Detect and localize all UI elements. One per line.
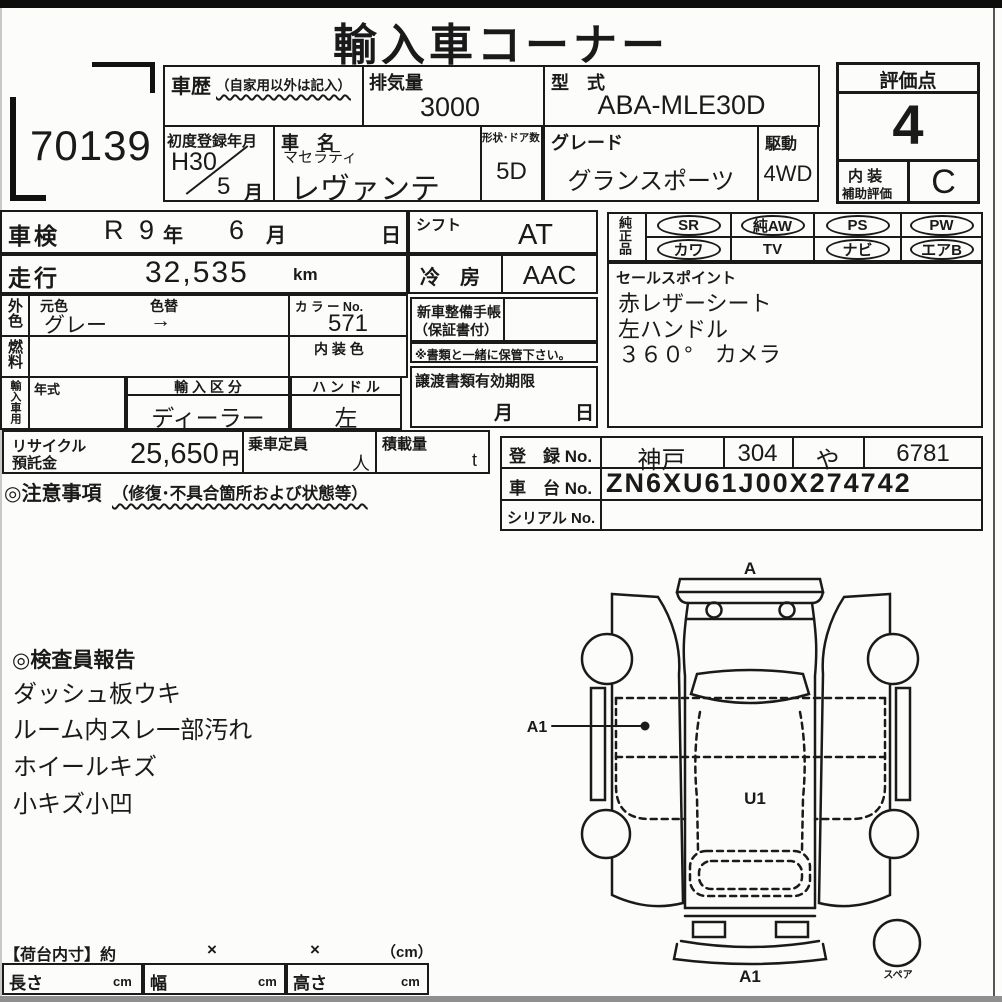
fuel-vlabel: 燃料 [7, 339, 22, 369]
rear-bumper-curve [681, 941, 819, 947]
shaken-month-unit: 月 [266, 219, 286, 248]
a1-arrow-dot [641, 722, 650, 731]
cargo-times-1: × [207, 940, 217, 960]
equip-leather: カワ [657, 239, 721, 260]
tail-light-right [776, 922, 808, 937]
cooling-value: AAC [501, 260, 598, 291]
shift-label: シフト [416, 214, 461, 235]
top-edge-strip [0, 0, 1002, 8]
caution-label: ◎注意事項 [4, 477, 101, 506]
load-label: 積載量 [382, 433, 427, 454]
equip-cell-sr: SR [645, 212, 732, 238]
roof-rail-left [695, 712, 700, 850]
headlamp-washer-right [780, 603, 795, 618]
recycle-divider-1 [242, 432, 244, 472]
cooling-label: 冷 房 [420, 261, 480, 290]
equip-pw: PW [910, 215, 974, 236]
keep-docs-note: ※書類と一緒に保管下さい。 [415, 346, 571, 363]
right-sill [896, 688, 910, 800]
grade-label: グレード [551, 129, 623, 155]
equip-ps: PS [826, 215, 890, 236]
equipment-vlabel: 純正品 [618, 216, 631, 255]
inspector-report-title: ◎検査員報告 [12, 644, 135, 674]
transfer-docs-label: 譲渡書類有効期限 [415, 370, 535, 391]
mileage-unit: km [293, 265, 318, 285]
inspector-item-3: ホイールキズ [13, 747, 157, 782]
cargo-width-label: 幅 [150, 969, 167, 994]
first-reg-month-unit: 月 [244, 178, 263, 205]
diagram-roof-label: U1 [744, 789, 766, 808]
history-note: （自家用以外は記入） [216, 74, 351, 94]
load-unit: t [472, 450, 477, 471]
model-code-value: ABA-MLE30D [543, 90, 820, 121]
reg-class-no: 304 [723, 440, 792, 468]
grade-value: グランスポーツ [543, 161, 759, 196]
rear-window-inner [699, 861, 802, 889]
right-rear-wheel [870, 810, 918, 858]
left-rear-wheel [582, 810, 630, 858]
vehicle-damage-diagram: A A1 U1 A1 スペア [500, 558, 1002, 1002]
maintenance-divider [503, 299, 505, 340]
right-front-wheel [868, 634, 918, 684]
equip-cell-navi: ナビ [813, 236, 902, 262]
score-label: 評価点 [836, 66, 980, 93]
diagram-rear-label: A1 [739, 967, 761, 986]
drive-value: 4WD [757, 161, 819, 187]
import-year-label: 年式 [34, 379, 60, 398]
handle-label: ハ ン ド ル [290, 377, 402, 397]
shape-doors-label: 形状･ドア数 [482, 130, 540, 145]
sales-point-3: ３６０° カメラ [618, 337, 781, 369]
equip-cell-aw: 純AW [730, 212, 815, 238]
import-division-value: ディーラー [126, 399, 290, 433]
diagram-front-label: A [744, 559, 756, 578]
spare-tire [874, 920, 920, 966]
transfer-day-unit: 日 [575, 398, 594, 425]
roof-rail-right [800, 712, 805, 850]
cargo-height-unit: cm [401, 974, 420, 989]
capacity-unit: 人 [352, 450, 370, 476]
equip-cell-kawa: カワ [645, 236, 732, 262]
shaken-day-unit: 日 [381, 219, 401, 248]
inspector-item-2: ルーム内スレ一部汚れ [13, 710, 252, 745]
shaken-month: 6 [229, 215, 244, 246]
shaken-year-unit: 年 [163, 219, 183, 248]
reg-row-divider-2 [502, 499, 981, 501]
drive-label: 駆動 [765, 130, 797, 154]
mileage-label: 走行 [8, 259, 60, 293]
color-no-value: 571 [288, 310, 408, 338]
maintenance-line2: （保証書付） [414, 320, 498, 340]
mileage-value: 32,535 [145, 256, 249, 290]
first-reg-month: 5 [217, 173, 230, 201]
chassis-no-value: ZN6XU61J00X274742 [606, 468, 912, 499]
recycle-unit: 円 [222, 444, 239, 469]
body-side-right [812, 603, 816, 908]
auction-sheet: 輸入車コーナー 70139 車歴 （自家用以外は記入） 排気量 3000 型 式… [0, 0, 1002, 1002]
interior-score-value: C [907, 163, 980, 202]
displacement-label: 排気量 [369, 69, 423, 95]
recycle-value: 25,650 [130, 438, 219, 471]
ext-color-vlabel: 外色 [7, 298, 22, 328]
reg-number: 6781 [863, 440, 983, 468]
roof-area-right [815, 698, 885, 819]
shape-doors-value: 5D [480, 158, 543, 186]
diagram-left-panel-label: A1 [527, 719, 548, 736]
equip-airbag: エアB [910, 239, 974, 260]
equip-cell-tv: TV [730, 236, 815, 262]
cargo-height-label: 高さ [293, 969, 327, 994]
serial-no-label: シリアル No. [507, 507, 595, 528]
caution-note: （修復･不具合箇所および状態等） [112, 480, 368, 504]
equip-cell-ps: PS [813, 212, 902, 238]
diagram-spare-label: スペア [883, 969, 912, 981]
equip-navi: ナビ [826, 239, 890, 260]
equip-sr: SR [657, 215, 721, 236]
left-sill [591, 688, 605, 800]
shaken-label: 車検 [8, 217, 60, 251]
cargo-unit-note: （cm） [381, 941, 433, 962]
equip-cell-pw: PW [900, 212, 983, 238]
car-model: レヴァンテ [290, 164, 440, 208]
inspector-item-1: ダッシュ板ウキ [13, 674, 181, 709]
cargo-length-unit: cm [113, 974, 132, 989]
lot-bracket-top-right [92, 62, 155, 93]
cargo-times-2: × [310, 940, 320, 960]
interior-color-label: 内 装 色 [314, 339, 364, 359]
cargo-length-label: 長さ [9, 969, 43, 994]
equip-tv: TV [741, 239, 805, 260]
body-side-left [684, 603, 688, 908]
equip-cell-airbag: エアB [900, 236, 983, 262]
lot-number: 70139 [30, 122, 152, 170]
fuel-cell [28, 335, 290, 378]
chassis-no-label: 車 台 No. [509, 474, 592, 499]
inspector-item-4: 小キズ小凹 [13, 784, 133, 819]
reg-no-label: 登 録 No. [509, 442, 592, 467]
displacement-value: 3000 [420, 92, 480, 123]
import-vlabel: 輸入車用 [9, 380, 20, 424]
score-value: 4 [836, 92, 980, 157]
shift-value: AT [518, 219, 553, 252]
left-edge-line [0, 8, 2, 996]
front-bumper [677, 579, 823, 592]
history-label: 車歴 [171, 70, 211, 99]
front-bumper-lip [677, 592, 823, 603]
maintenance-line1: 新車整備手帳 [417, 302, 501, 322]
shaken-era: R 9 [104, 215, 158, 246]
equip-aw: 純AW [741, 215, 805, 236]
shaken-row [0, 210, 408, 254]
transfer-month-unit: 月 [494, 398, 513, 425]
recycle-divider-2 [375, 432, 377, 472]
import-division-label: 輸 入 区 分 [126, 377, 290, 397]
roof-area-left [616, 698, 685, 819]
interior-label-2: 補助評価 [842, 183, 892, 202]
left-front-wheel [582, 634, 632, 684]
handle-value: 左 [290, 399, 402, 433]
capacity-label: 乗車定員 [248, 433, 308, 454]
sales-points-label: セールスポイント [616, 267, 736, 288]
recycle-label-2: 預託金 [12, 452, 57, 473]
tail-light-left [693, 922, 725, 937]
color-change-arrow: → [150, 309, 171, 333]
cargo-width-unit: cm [258, 974, 277, 989]
headlamp-washer-left [707, 603, 722, 618]
cargo-title: 【荷台内寸】約 [4, 941, 116, 965]
